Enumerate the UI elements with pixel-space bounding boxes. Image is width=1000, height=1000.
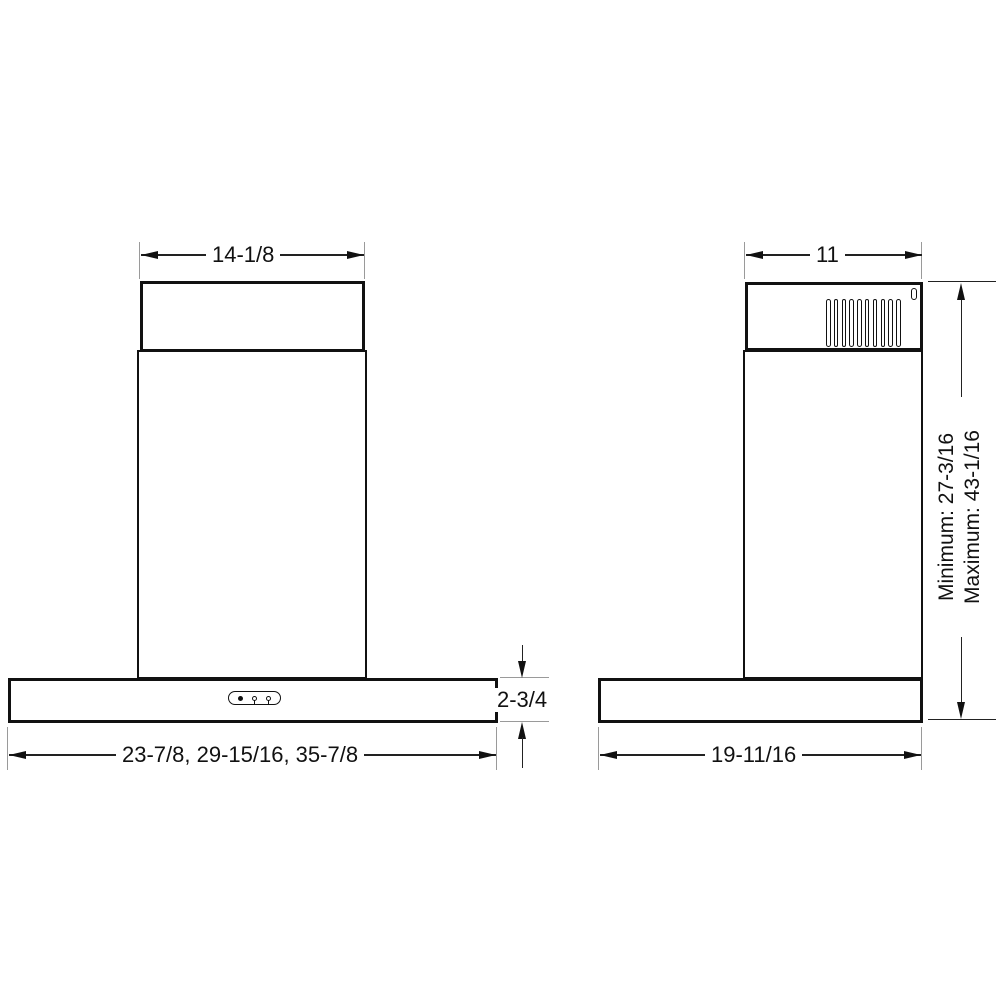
extension-line [598,727,599,770]
vent-slat-icon [842,299,847,347]
arrow-right-icon [904,751,921,759]
extension-line [364,242,365,279]
vent-slat-icon [865,299,870,347]
dim-label-mounting-height: Minimum: 27-3/16 Maximum: 43-1/16 [934,397,988,637]
extension-line [921,242,922,279]
dim-label-chimney-top-width: 14-1/8 [206,243,280,267]
front-lower-duct-cover [137,350,367,679]
arrow-right-icon [347,251,364,259]
vent-slat-icon [888,299,893,347]
extension-line [928,719,996,720]
dimension-line [961,630,963,704]
fan-speed-icon [266,696,271,701]
dim-label-canopy-height: 2-3/4 [495,688,549,712]
arrow-down-icon [518,661,526,678]
dim-label-height-maximum: Maximum: 43-1/16 [960,397,986,637]
arrow-down-icon [957,702,965,719]
extension-line [744,242,745,279]
arrow-right-icon [479,751,496,759]
dim-label-body-widths: 23-7/8, 29-15/16, 35-7/8 [116,743,364,767]
dim-label-chimney-depth: 11 [810,243,845,267]
knockout-slot-icon [911,288,917,300]
side-hood-canopy [598,678,923,723]
dim-label-height-minimum: Minimum: 27-3/16 [934,397,960,637]
side-lower-duct-cover [743,350,923,679]
arrow-right-icon [905,251,922,259]
arrow-left-icon [9,751,26,759]
front-upper-duct-cover [140,281,365,352]
extension-line [7,727,8,770]
range-hood-dimension-diagram: 14-1/8 2-3/4 23-7/8, 29-15/16, 35-7/8 [0,0,1000,1000]
extension-line [496,727,497,770]
extension-line [921,727,922,770]
power-button-icon [238,696,243,701]
vent-slat-icon [857,299,862,347]
vent-slat-icon [834,299,839,347]
arrow-left-icon [600,751,617,759]
dimension-line [522,737,524,768]
dim-label-canopy-depth: 19-11/16 [705,743,802,767]
vent-slat-icon [849,299,854,347]
control-panel [228,691,281,705]
extension-line [928,281,996,282]
dimension-line [961,297,963,407]
extension-line [139,242,140,279]
arrow-left-icon [746,251,763,259]
arrow-up-icon [957,283,965,300]
arrow-left-icon [141,251,158,259]
vent-slat-icon [873,299,878,347]
vent-slat-icon [826,299,831,347]
fan-speed-icon [252,696,257,701]
vent-slat-icon [896,299,901,347]
vent-slats [826,299,901,347]
vent-slat-icon [881,299,886,347]
